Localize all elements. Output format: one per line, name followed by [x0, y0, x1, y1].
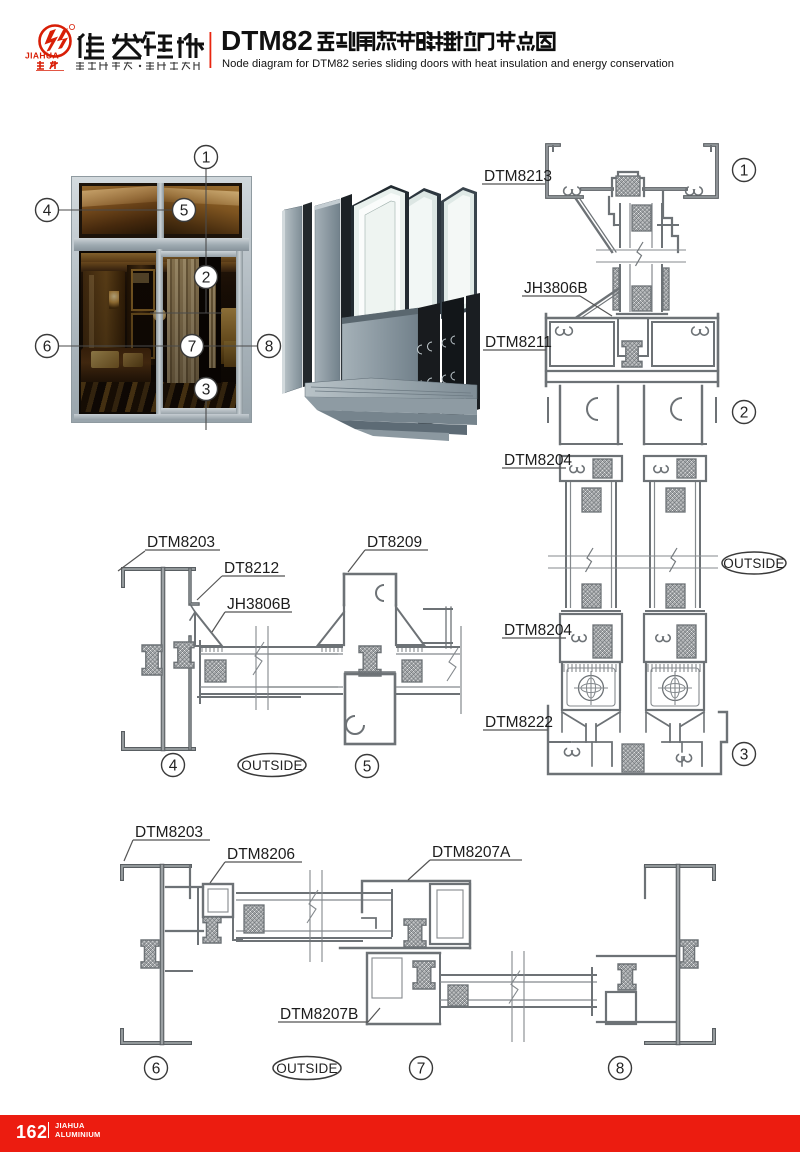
svg-text:7: 7	[188, 339, 197, 356]
svg-text:1: 1	[740, 163, 749, 180]
svg-text:DTM8222: DTM8222	[485, 714, 553, 731]
svg-text:DTM8211: DTM8211	[485, 334, 552, 351]
svg-text:OUTSIDE: OUTSIDE	[723, 556, 784, 571]
svg-text:6: 6	[152, 1061, 161, 1078]
svg-text:2: 2	[740, 405, 749, 422]
svg-text:3: 3	[740, 747, 749, 764]
svg-text:JH3806B: JH3806B	[227, 596, 291, 613]
svg-text:5: 5	[363, 759, 372, 776]
svg-text:5: 5	[180, 203, 189, 220]
svg-text:DTM8203: DTM8203	[135, 824, 203, 841]
svg-text:DTM8207A: DTM8207A	[432, 844, 511, 861]
svg-text:3: 3	[202, 382, 211, 399]
svg-text:DTM8203: DTM8203	[147, 534, 215, 551]
svg-text:DTM8207B: DTM8207B	[280, 1006, 358, 1023]
svg-text:DT8212: DT8212	[224, 560, 279, 577]
svg-text:2: 2	[202, 270, 211, 287]
svg-text:4: 4	[169, 758, 178, 775]
svg-text:8: 8	[265, 339, 274, 356]
svg-text:7: 7	[417, 1061, 426, 1078]
svg-text:8: 8	[616, 1061, 625, 1078]
svg-text:DTM8204: DTM8204	[504, 622, 572, 639]
svg-text:DTM8213: DTM8213	[484, 168, 552, 185]
svg-text:DT8209: DT8209	[367, 534, 422, 551]
svg-text:JH3806B: JH3806B	[524, 280, 588, 297]
svg-text:6: 6	[43, 339, 52, 356]
svg-text:OUTSIDE: OUTSIDE	[276, 1061, 337, 1076]
svg-text:DTM8206: DTM8206	[227, 846, 295, 863]
svg-text:1: 1	[202, 150, 211, 167]
svg-text:OUTSIDE: OUTSIDE	[241, 758, 302, 773]
svg-text:4: 4	[43, 203, 52, 220]
svg-text:DTM8204: DTM8204	[504, 452, 572, 469]
